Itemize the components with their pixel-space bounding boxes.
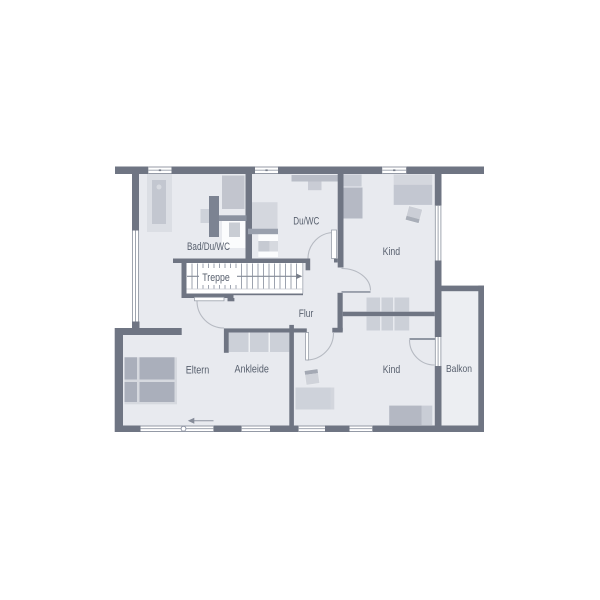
svg-text:Du/WC: Du/WC [293,216,319,228]
svg-text:Treppe: Treppe [202,272,230,284]
svg-text:Bad/Du/WC: Bad/Du/WC [187,241,230,253]
svg-text:Eltern: Eltern [186,365,210,377]
svg-text:Ankleide: Ankleide [234,364,269,376]
svg-text:Kind: Kind [383,364,401,376]
svg-text:Flur: Flur [299,308,314,320]
svg-text:Kind: Kind [383,246,401,258]
svg-text:Balkon: Balkon [446,363,472,375]
